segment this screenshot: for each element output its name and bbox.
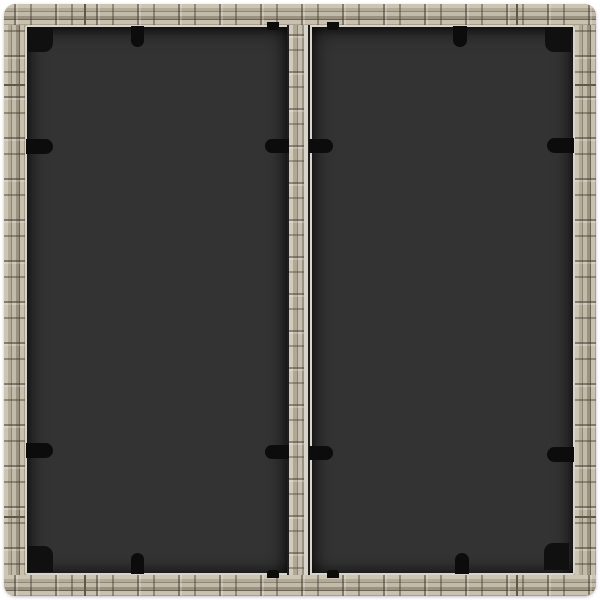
strip-end-nub-top-right: [327, 22, 339, 30]
strip-rattan-weave: [289, 25, 304, 575]
frame-seam-right-1: [575, 84, 596, 86]
glass-clip-left-lower: [26, 443, 53, 458]
strip-clip-upper-left: [265, 139, 289, 153]
corner-bracket-top-right: [545, 27, 571, 52]
frame-seam-left-2: [4, 516, 25, 518]
strip-clip-lower-right: [309, 446, 333, 460]
frame-right-edge: [575, 4, 596, 596]
corner-bracket-bottom-left: [28, 546, 53, 572]
tabletop-opening: [25, 25, 575, 575]
glass-clip-right-lower: [547, 447, 574, 462]
strip-end-nub-bottom-left: [267, 570, 279, 578]
frame-left-edge: [4, 4, 25, 596]
frame-top-edge: [4, 4, 596, 25]
frame-seam-left-1: [4, 84, 25, 86]
glass-clip-top-right-panel: [453, 26, 467, 47]
strip-clip-upper-right: [309, 139, 333, 153]
strip-end-nub-top-left: [267, 22, 279, 30]
frame-bottom-edge: [4, 575, 596, 596]
glass-clip-right-upper: [547, 138, 574, 153]
frame-seam-right-2: [575, 516, 596, 518]
frame-seam-top-2: [516, 4, 518, 25]
corner-bracket-bottom-right: [544, 543, 569, 570]
corner-bracket-top-left: [28, 28, 53, 52]
rattan-table-top: [4, 4, 596, 596]
strip-clip-lower-left: [265, 445, 289, 459]
strip-end-nub-bottom-right: [327, 570, 339, 578]
product-photo: [0, 0, 600, 600]
center-divider-strip: [287, 25, 310, 575]
glass-panel-left: [27, 27, 287, 573]
frame-seam-bottom-1: [84, 575, 86, 596]
glass-clip-top-left-panel: [131, 26, 144, 47]
glass-clip-left-upper: [26, 139, 53, 154]
frame-seam-top-1: [84, 4, 86, 25]
glass-clip-bottom-left-panel: [131, 553, 144, 574]
frame-seam-bottom-2: [516, 575, 518, 596]
glass-clip-bottom-right-panel: [455, 553, 469, 574]
glass-panel-right: [312, 27, 573, 573]
